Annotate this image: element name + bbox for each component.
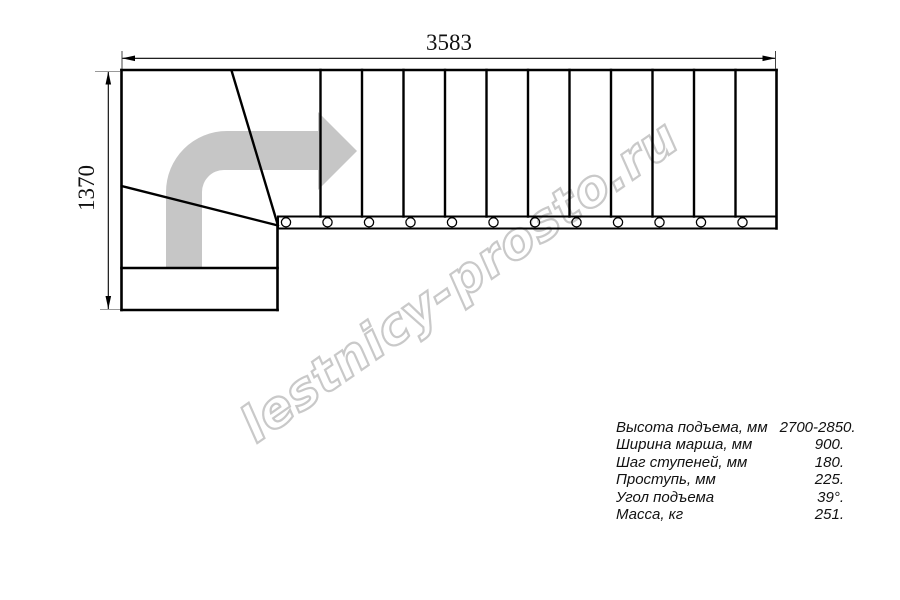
mount-circle: [281, 218, 290, 227]
spec-row: Высота подъема, мм 2700-2850.: [616, 419, 844, 436]
mount-circle: [738, 218, 747, 227]
mount-circle: [655, 218, 664, 227]
spec-label: Шаг ступеней, мм: [616, 454, 747, 471]
spec-value: 180.: [815, 454, 844, 471]
height-arrowhead-bottom: [106, 296, 112, 309]
width-arrowhead-left: [122, 56, 135, 62]
mount-circle: [696, 218, 705, 227]
spec-label: Угол подъема: [616, 489, 714, 506]
mount-circle: [323, 218, 332, 227]
mount-circle: [447, 218, 456, 227]
spec-label: Ширина марша, мм: [616, 436, 752, 453]
spec-label: Проступь, мм: [616, 471, 716, 488]
spec-value: 39°.: [817, 489, 844, 506]
width-dimension: 3583: [122, 30, 776, 69]
spec-value: 900.: [815, 436, 844, 453]
height-dimension: 1370: [74, 72, 120, 310]
spec-value: 251.: [815, 506, 844, 523]
width-dimension-label: 3583: [426, 30, 472, 55]
height-dimension-label: 1370: [74, 165, 99, 211]
spec-label: Высота подъема, мм: [616, 419, 768, 436]
width-arrowhead-right: [763, 56, 776, 62]
spec-label: Масса, кг: [616, 506, 683, 523]
mount-circle: [406, 218, 415, 227]
specs-table: Высота подъема, мм 2700-2850. Ширина мар…: [616, 419, 844, 523]
mount-circle: [613, 218, 622, 227]
spec-row: Угол подъема 39°.: [616, 489, 844, 506]
spec-value: 2700-2850.: [780, 419, 856, 436]
direction-arrow-icon: [166, 112, 357, 267]
spec-row: Масса, кг 251.: [616, 506, 844, 523]
spec-row: Проступь, мм 225.: [616, 471, 844, 488]
spec-row: Ширина марша, мм 900.: [616, 436, 844, 453]
spec-value: 225.: [815, 471, 844, 488]
mount-circle: [364, 218, 373, 227]
spec-row: Шаг ступеней, мм 180.: [616, 454, 844, 471]
drawing-page: lestnicy-prosto.ru: [0, 0, 900, 600]
height-arrowhead-top: [106, 72, 112, 85]
